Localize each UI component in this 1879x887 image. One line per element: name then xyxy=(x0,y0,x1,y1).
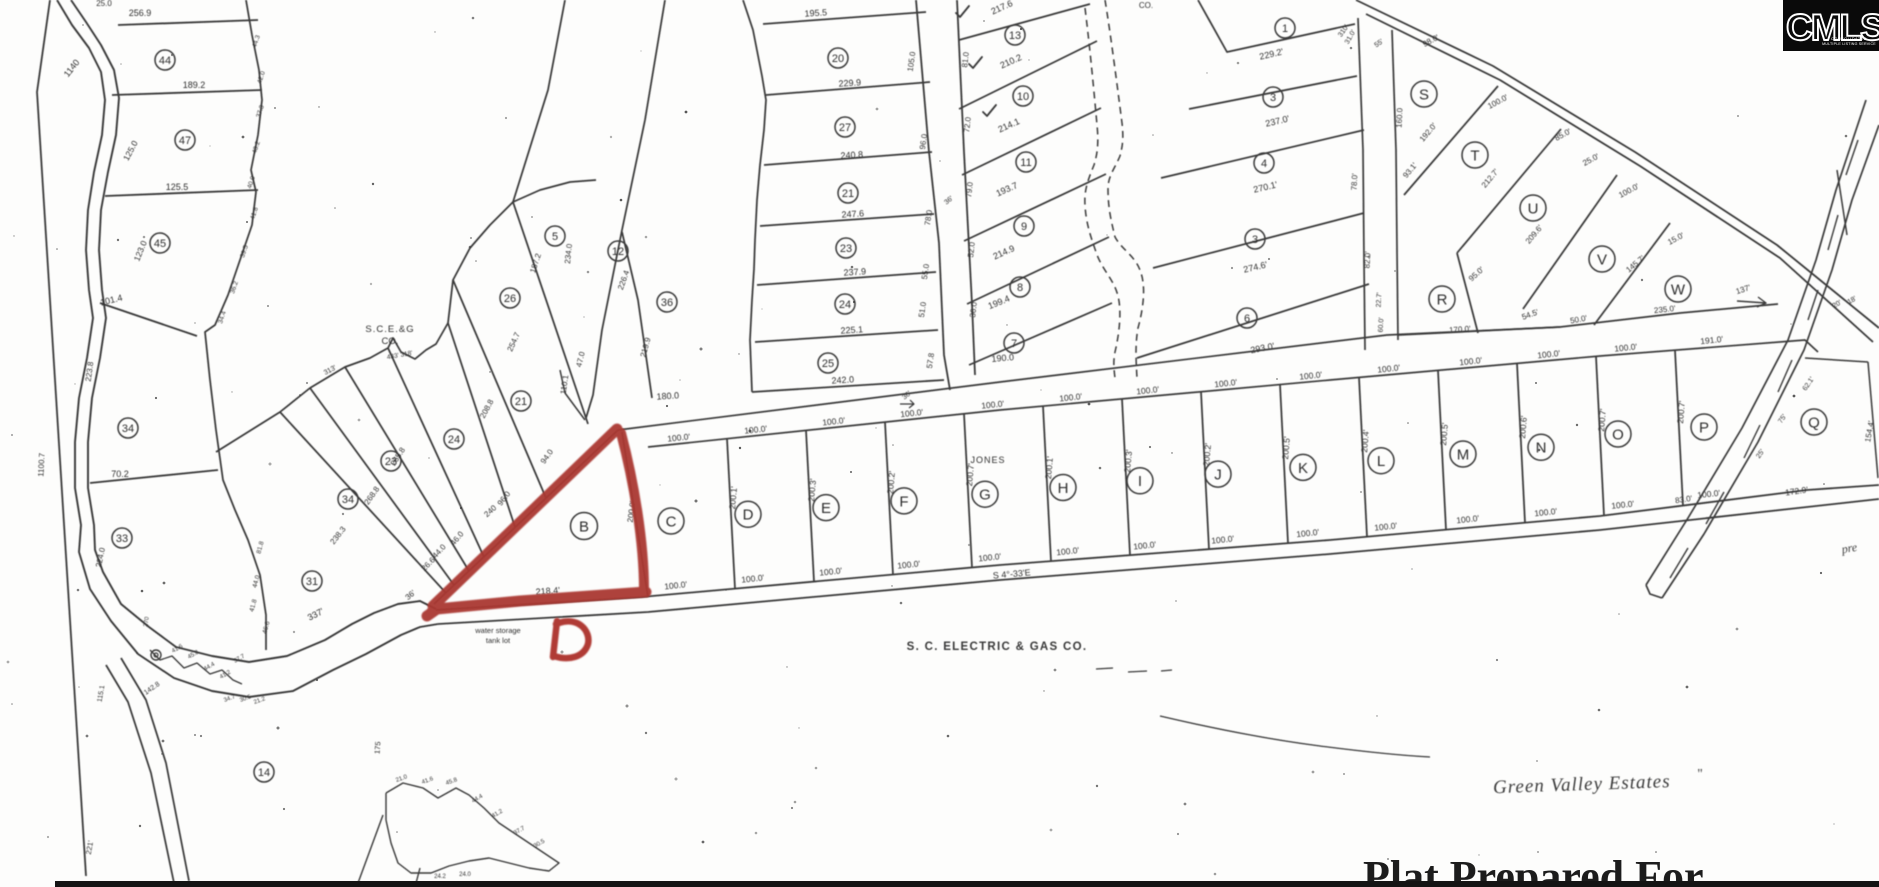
svg-text:24.2: 24.2 xyxy=(434,874,446,880)
svg-text:190.0: 190.0 xyxy=(991,352,1014,364)
svg-text:200.7': 200.7' xyxy=(1675,400,1687,424)
svg-text:14: 14 xyxy=(258,767,270,779)
svg-text:25.0: 25.0 xyxy=(96,0,112,8)
svg-text:82.0': 82.0' xyxy=(1363,251,1373,269)
svg-text:200.6': 200.6' xyxy=(1517,415,1529,439)
svg-text:78.0': 78.0' xyxy=(1350,173,1360,191)
svg-text:W: W xyxy=(1671,281,1686,298)
svg-text:13: 13 xyxy=(1009,30,1021,42)
svg-text:72.0: 72.0 xyxy=(962,116,973,133)
svg-text:256.9: 256.9 xyxy=(129,8,152,18)
svg-text:4: 4 xyxy=(1261,158,1267,170)
svg-text:6: 6 xyxy=(1244,313,1250,325)
svg-text:G: G xyxy=(979,487,991,504)
svg-text:CONSOLIDATED: CONSOLIDATED xyxy=(1831,36,1867,41)
svg-text:3: 3 xyxy=(1270,92,1276,104)
svg-text:25: 25 xyxy=(822,358,834,370)
svg-text:240.8: 240.8 xyxy=(840,149,863,161)
svg-text:F: F xyxy=(899,493,908,510)
svg-text:26: 26 xyxy=(504,293,516,305)
svg-text:247.6: 247.6 xyxy=(841,208,864,220)
svg-text:24.0: 24.0 xyxy=(459,872,471,878)
svg-text:tank lot: tank lot xyxy=(486,636,511,645)
svg-text:9: 9 xyxy=(1021,221,1027,233)
svg-text:U: U xyxy=(1528,200,1539,217)
svg-text:189.2: 189.2 xyxy=(183,80,206,90)
svg-text:S: S xyxy=(1419,86,1429,103)
svg-text:36.0: 36.0 xyxy=(968,301,979,318)
svg-text:CO.: CO. xyxy=(382,336,399,347)
svg-text:180.0: 180.0 xyxy=(656,390,679,402)
svg-text:47: 47 xyxy=(179,135,191,147)
svg-text:R: R xyxy=(1437,291,1448,308)
svg-text:L: L xyxy=(1377,453,1385,470)
svg-text:7: 7 xyxy=(1011,338,1017,350)
svg-text:34: 34 xyxy=(342,494,354,506)
svg-text:12: 12 xyxy=(612,246,624,258)
svg-text:10: 10 xyxy=(1017,91,1029,103)
svg-text:22.7': 22.7' xyxy=(1376,292,1384,307)
svg-text:27: 27 xyxy=(839,122,851,134)
svg-text:242.0: 242.0 xyxy=(831,374,854,386)
svg-text:O: O xyxy=(1612,426,1624,443)
svg-text:34: 34 xyxy=(122,423,134,435)
svg-text:200.5': 200.5' xyxy=(1280,436,1292,460)
svg-text:31: 31 xyxy=(306,576,318,588)
svg-text:79.0: 79.0 xyxy=(964,181,975,198)
svg-text:E: E xyxy=(821,500,831,517)
svg-text:200.5': 200.5' xyxy=(1438,422,1450,446)
svg-text:MULTIPLE LISTING SERVICE: MULTIPLE LISTING SERVICE xyxy=(1822,42,1876,46)
svg-text:23: 23 xyxy=(840,243,852,255)
svg-text:45: 45 xyxy=(154,238,166,250)
svg-text:water storage: water storage xyxy=(474,626,520,635)
svg-text:D: D xyxy=(743,507,754,524)
svg-text:170.0': 170.0' xyxy=(1449,324,1472,335)
svg-text:200.7': 200.7' xyxy=(964,463,976,487)
svg-text:1: 1 xyxy=(1282,23,1288,35)
svg-text:200.3': 200.3' xyxy=(1122,449,1134,473)
svg-text:195.5: 195.5 xyxy=(804,7,827,19)
svg-text:pre: pre xyxy=(1839,540,1858,557)
svg-text:125.5: 125.5 xyxy=(166,182,189,192)
svg-text:5: 5 xyxy=(552,231,558,243)
svg-text:21: 21 xyxy=(842,188,854,200)
svg-text:V: V xyxy=(1597,251,1607,268)
svg-text:52.0: 52.0 xyxy=(966,241,977,258)
svg-text:T: T xyxy=(1470,147,1479,164)
svg-text:36: 36 xyxy=(661,297,673,309)
svg-text:70.2: 70.2 xyxy=(111,469,129,479)
svg-text:3: 3 xyxy=(1252,234,1258,246)
svg-text:S.C.E.&G: S.C.E.&G xyxy=(365,324,414,335)
svg-text:33: 33 xyxy=(116,533,128,545)
svg-text:N: N xyxy=(1536,440,1547,457)
svg-text:C: C xyxy=(666,513,677,530)
svg-text:60.0': 60.0' xyxy=(1378,317,1386,332)
svg-text:175: 175 xyxy=(372,741,382,754)
svg-text:20: 20 xyxy=(832,53,844,65)
svg-text:H: H xyxy=(1058,480,1069,497)
svg-text:'': '' xyxy=(1697,767,1702,782)
svg-text:J: J xyxy=(1214,467,1222,484)
svg-text:11: 11 xyxy=(1020,157,1031,169)
svg-text:Q: Q xyxy=(1808,414,1820,431)
svg-text:21: 21 xyxy=(515,396,527,408)
svg-text:200.1': 200.1' xyxy=(1043,455,1055,479)
svg-text:B: B xyxy=(579,518,589,535)
svg-text:229.9: 229.9 xyxy=(838,77,861,89)
svg-text:24: 24 xyxy=(448,434,460,446)
svg-text:44: 44 xyxy=(159,55,171,67)
svg-text:225.1: 225.1 xyxy=(840,324,863,336)
svg-text:200.4': 200.4' xyxy=(1359,429,1371,453)
svg-text:I: I xyxy=(1138,473,1142,490)
svg-text:CO.: CO. xyxy=(1139,1,1153,10)
svg-text:M: M xyxy=(1457,446,1470,463)
svg-text:K: K xyxy=(1298,460,1308,477)
svg-text:1100.7: 1100.7 xyxy=(36,452,46,477)
svg-text:S. C. ELECTRIC & GAS CO.: S. C. ELECTRIC & GAS CO. xyxy=(907,641,1088,653)
svg-text:8: 8 xyxy=(1017,282,1023,294)
svg-text:P: P xyxy=(1699,419,1709,436)
svg-text:237.9: 237.9 xyxy=(843,266,866,278)
svg-text:160.0: 160.0 xyxy=(1394,107,1404,128)
svg-text:24: 24 xyxy=(839,299,851,311)
svg-text:JONES: JONES xyxy=(970,455,1005,465)
